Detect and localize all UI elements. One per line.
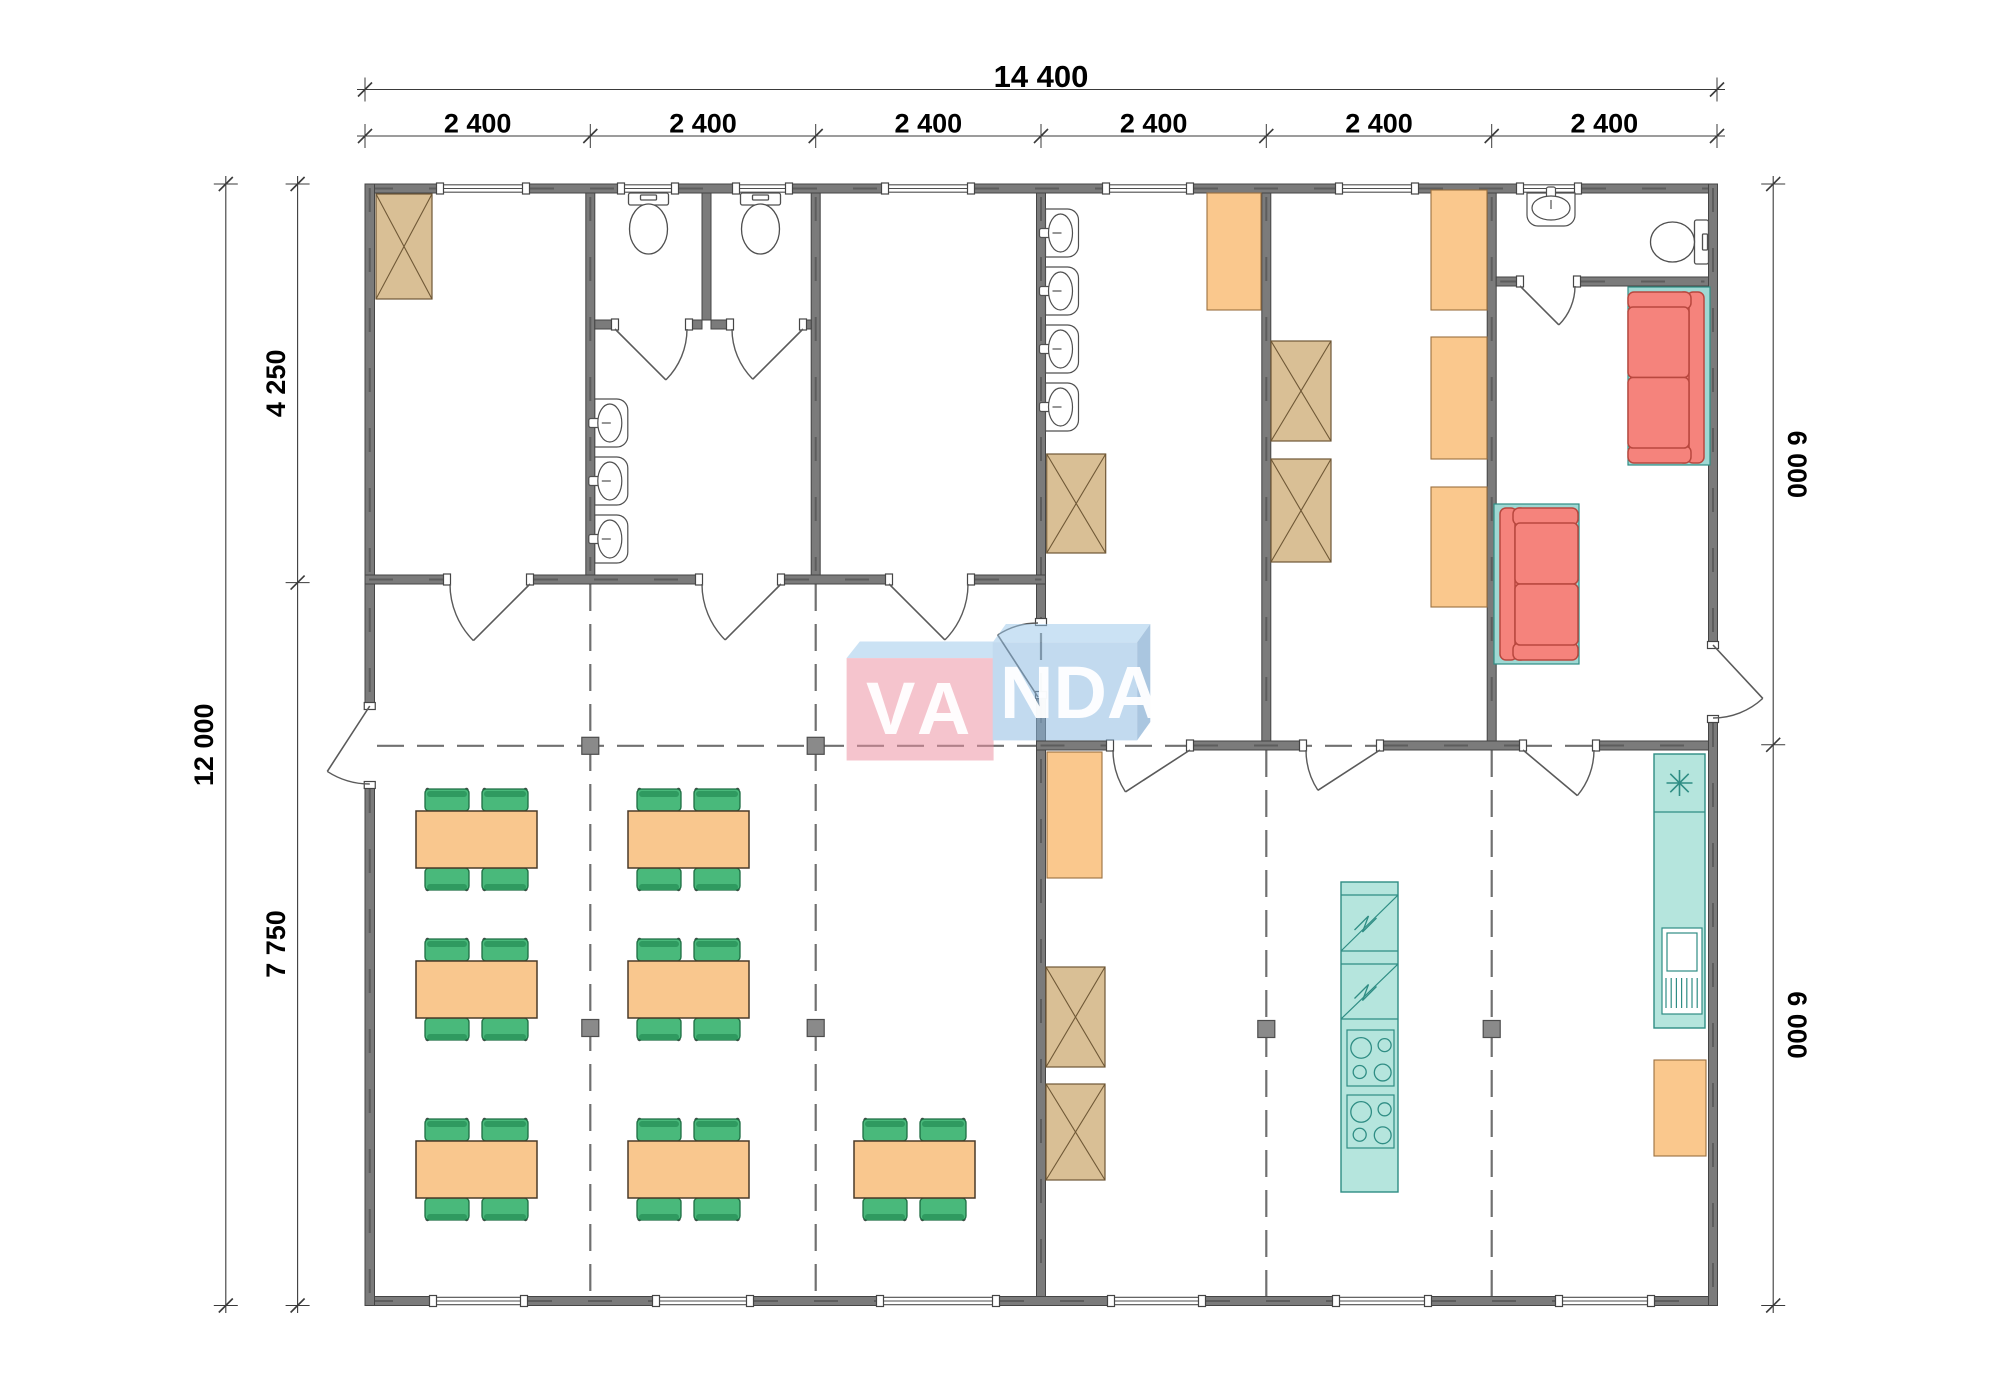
svg-text:2 400: 2 400 [444, 109, 512, 139]
svg-text:2 400: 2 400 [1571, 109, 1639, 139]
svg-text:2 400: 2 400 [1345, 109, 1413, 139]
svg-text:2 400: 2 400 [669, 109, 737, 139]
svg-text:4 250: 4 250 [261, 350, 291, 418]
svg-text:12 000: 12 000 [189, 704, 219, 787]
svg-text:6 000: 6 000 [1782, 991, 1812, 1059]
svg-text:2 400: 2 400 [895, 109, 963, 139]
svg-text:2 400: 2 400 [1120, 109, 1188, 139]
svg-text:NDA: NDA [1000, 651, 1160, 734]
svg-text:VA: VA [866, 667, 977, 750]
svg-text:14 400: 14 400 [994, 59, 1089, 94]
svg-text:6 000: 6 000 [1782, 431, 1812, 499]
svg-text:7 750: 7 750 [261, 910, 291, 978]
